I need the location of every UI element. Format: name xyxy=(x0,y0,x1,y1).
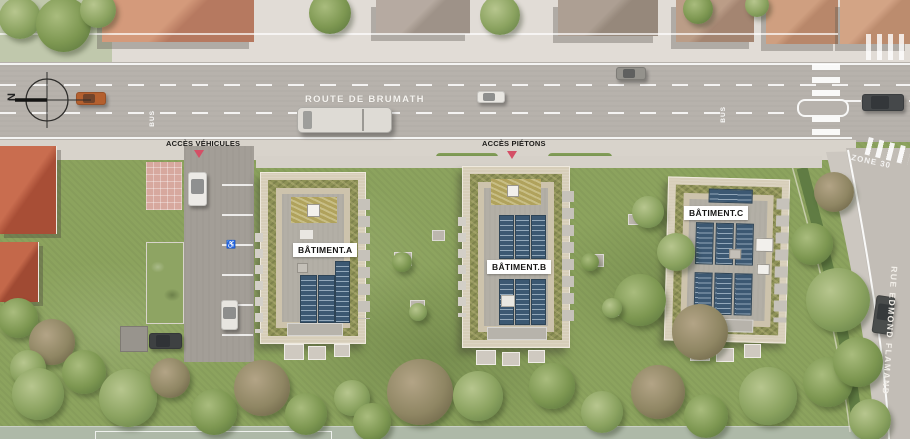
site-plan: ♿ xyxy=(0,0,910,439)
bus-lane-marking: BUS xyxy=(149,110,156,127)
pedestrian-access-label: ACCÈS PIÉTONS xyxy=(482,139,546,148)
batiment-a-tag: BÂTIMENT.A xyxy=(293,243,357,257)
bus xyxy=(297,107,392,133)
main-road-name: ROUTE DE BRUMATH xyxy=(305,94,425,105)
car xyxy=(862,94,904,111)
car xyxy=(76,92,106,105)
car xyxy=(477,91,505,103)
compass-north-label: N xyxy=(6,93,18,101)
vehicle-access-marker-icon xyxy=(194,150,204,158)
car xyxy=(188,172,207,206)
car xyxy=(149,333,182,349)
car xyxy=(221,300,238,330)
bus-lane-marking: BUS xyxy=(720,106,727,123)
vehicle-layer xyxy=(0,0,910,439)
batiment-c-tag: BÂTIMENT.C xyxy=(684,206,748,220)
pedestrian-access-marker-icon xyxy=(507,151,517,159)
car xyxy=(616,67,646,80)
batiment-b-tag: BÂTIMENT.B xyxy=(487,260,551,274)
vehicle-access-label: ACCÈS VÉHICULES xyxy=(166,139,240,148)
